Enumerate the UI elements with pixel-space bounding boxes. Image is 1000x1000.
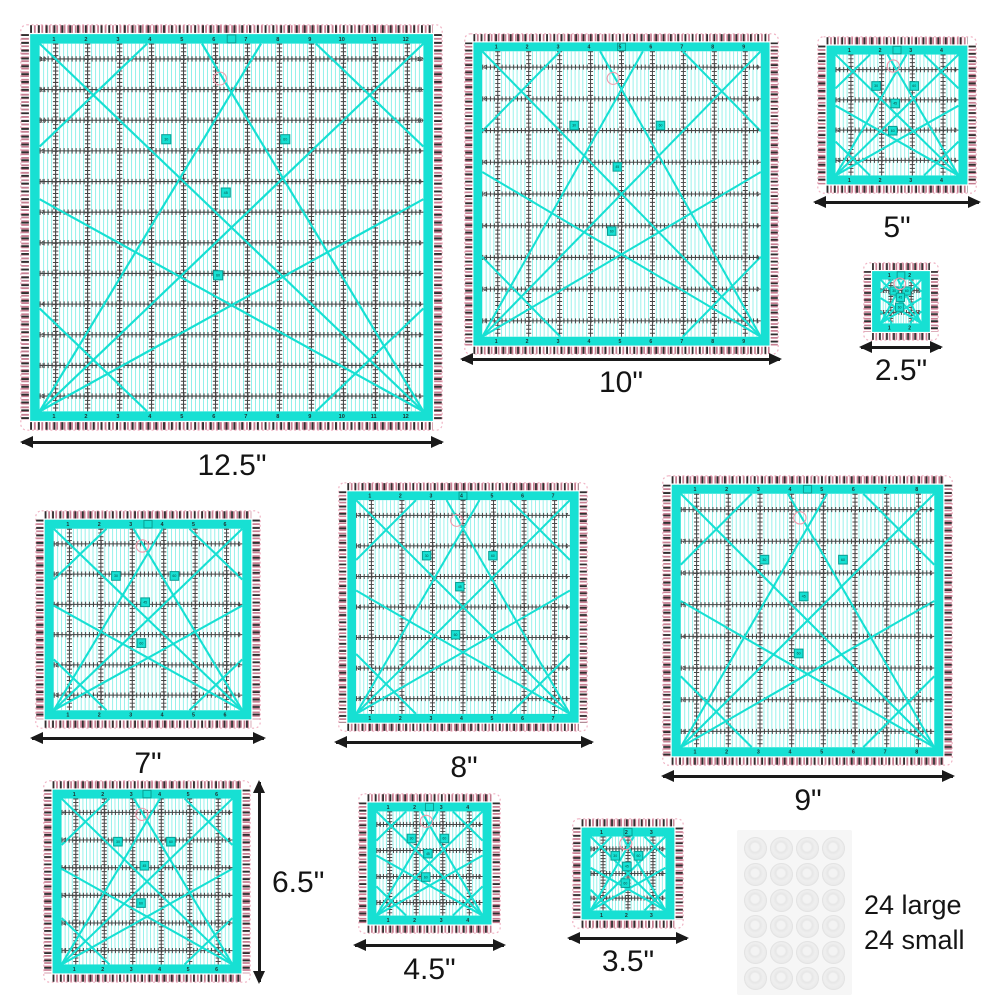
svg-text:2: 2 xyxy=(418,363,421,369)
svg-text:6: 6 xyxy=(215,967,218,973)
svg-text:6: 6 xyxy=(212,414,215,420)
svg-text:1: 1 xyxy=(661,896,664,902)
dots-count-small: 24 small xyxy=(864,923,965,958)
svg-text:5: 5 xyxy=(187,792,190,798)
svg-text:5: 5 xyxy=(491,494,494,500)
svg-text:3: 3 xyxy=(130,792,133,798)
svg-text:60: 60 xyxy=(139,641,143,645)
svg-text:30: 30 xyxy=(114,574,118,578)
adhesive-dot xyxy=(822,863,845,886)
svg-text:60: 60 xyxy=(454,633,458,637)
svg-text:60: 60 xyxy=(424,875,428,879)
svg-text:8: 8 xyxy=(276,414,279,420)
svg-text:1: 1 xyxy=(600,830,603,836)
svg-text:7: 7 xyxy=(756,128,759,134)
svg-text:5: 5 xyxy=(180,37,183,43)
svg-text:5: 5 xyxy=(820,750,823,756)
svg-text:8: 8 xyxy=(930,508,933,514)
adhesive-dot xyxy=(822,889,845,912)
svg-text:1: 1 xyxy=(368,494,371,500)
svg-text:1: 1 xyxy=(682,729,685,735)
dimension-arrow-2-5 xyxy=(861,346,941,349)
svg-text:4: 4 xyxy=(63,866,66,872)
size-label-8: 8" xyxy=(336,751,592,784)
svg-text:4: 4 xyxy=(940,48,943,54)
svg-text:1: 1 xyxy=(358,696,361,702)
adhesive-dot xyxy=(770,941,793,964)
svg-text:2: 2 xyxy=(625,913,628,919)
svg-text:5: 5 xyxy=(618,339,621,345)
svg-text:3: 3 xyxy=(757,750,760,756)
svg-text:9: 9 xyxy=(308,37,311,43)
svg-text:60: 60 xyxy=(841,558,845,562)
svg-text:6: 6 xyxy=(852,487,855,493)
dimension-arrow-12-5 xyxy=(22,441,442,444)
adhesive-dot xyxy=(796,915,819,938)
svg-text:6: 6 xyxy=(521,494,524,500)
svg-text:2: 2 xyxy=(682,698,685,704)
adhesive-dot xyxy=(822,941,845,964)
svg-text:30: 30 xyxy=(613,854,617,858)
svg-text:3: 3 xyxy=(930,666,933,672)
svg-text:6: 6 xyxy=(358,544,361,550)
dimension-arrow-5 xyxy=(815,201,979,204)
ruler-3-5-inch: 30604560113322223311 xyxy=(572,818,684,929)
svg-text:7: 7 xyxy=(930,539,933,545)
svg-text:5: 5 xyxy=(930,603,933,609)
quilting-ruler-graphic: 30604560116622553344443355226611 xyxy=(35,510,261,729)
svg-text:5: 5 xyxy=(756,192,759,198)
svg-text:8: 8 xyxy=(276,37,279,43)
adhesive-dot xyxy=(822,967,845,990)
svg-text:5: 5 xyxy=(228,838,231,844)
svg-text:60: 60 xyxy=(898,305,902,309)
dimension-arrow-6-5 xyxy=(258,782,261,982)
svg-text:3: 3 xyxy=(565,635,568,641)
svg-text:4: 4 xyxy=(158,792,161,798)
svg-text:8: 8 xyxy=(418,180,421,186)
quilting-ruler-graphic: 306045601144223333224411 xyxy=(358,793,501,934)
svg-text:1: 1 xyxy=(495,339,498,345)
svg-text:3: 3 xyxy=(682,666,685,672)
svg-text:3: 3 xyxy=(228,893,231,899)
svg-text:2: 2 xyxy=(879,48,882,54)
svg-text:11: 11 xyxy=(371,37,377,43)
svg-text:8: 8 xyxy=(41,180,44,186)
svg-text:9: 9 xyxy=(484,65,487,71)
svg-text:3: 3 xyxy=(909,48,912,54)
size-label-9: 9" xyxy=(663,784,953,817)
ruler-4-5-inch: 306045601144223333224411 xyxy=(358,793,501,934)
svg-text:2: 2 xyxy=(484,287,487,293)
svg-text:2: 2 xyxy=(55,663,58,669)
svg-text:45: 45 xyxy=(224,191,228,195)
quilting-ruler-graphic: 3060456011992288337744665555664477338822… xyxy=(464,33,779,355)
adhesive-dot xyxy=(770,915,793,938)
svg-text:5: 5 xyxy=(63,838,66,844)
adhesive-dot xyxy=(744,967,767,990)
svg-text:1: 1 xyxy=(930,729,933,735)
svg-text:9: 9 xyxy=(41,149,44,155)
svg-text:1: 1 xyxy=(66,522,69,528)
ruler-6-5-inch: 30604560116622553344443355226611 xyxy=(43,780,251,983)
svg-text:4: 4 xyxy=(466,918,469,924)
svg-text:5: 5 xyxy=(491,716,494,722)
svg-text:1: 1 xyxy=(387,805,390,811)
adhesive-dot xyxy=(744,941,767,964)
svg-text:30: 30 xyxy=(892,289,896,293)
svg-text:5: 5 xyxy=(187,967,190,973)
svg-text:2: 2 xyxy=(908,325,911,331)
svg-text:1: 1 xyxy=(592,896,595,902)
svg-text:2: 2 xyxy=(625,830,628,836)
svg-text:3: 3 xyxy=(756,255,759,261)
svg-text:8: 8 xyxy=(711,339,714,345)
svg-text:60: 60 xyxy=(659,124,663,128)
svg-text:4: 4 xyxy=(358,605,361,611)
svg-text:9: 9 xyxy=(756,65,759,71)
dots-count-large: 24 large xyxy=(864,888,965,923)
svg-text:1: 1 xyxy=(66,713,69,719)
svg-text:2: 2 xyxy=(565,666,568,672)
dimension-arrow-4-5 xyxy=(355,944,504,947)
svg-text:30: 30 xyxy=(164,138,168,142)
svg-text:45: 45 xyxy=(899,296,903,300)
svg-text:6: 6 xyxy=(930,571,933,577)
svg-text:9: 9 xyxy=(308,414,311,420)
svg-text:2: 2 xyxy=(879,178,882,184)
svg-text:3: 3 xyxy=(429,494,432,500)
svg-text:2: 2 xyxy=(63,921,66,927)
svg-text:4: 4 xyxy=(930,634,933,640)
svg-text:7: 7 xyxy=(418,210,421,216)
svg-text:2: 2 xyxy=(837,128,840,134)
svg-text:10: 10 xyxy=(417,118,423,124)
svg-text:11: 11 xyxy=(40,88,46,94)
svg-text:2: 2 xyxy=(478,874,481,880)
svg-text:12: 12 xyxy=(40,57,46,63)
svg-text:1: 1 xyxy=(888,273,891,279)
adhesive-dot xyxy=(770,863,793,886)
svg-text:6: 6 xyxy=(55,542,58,548)
svg-text:1: 1 xyxy=(888,325,891,331)
svg-text:7: 7 xyxy=(565,513,568,519)
svg-text:2: 2 xyxy=(882,288,885,294)
svg-text:6: 6 xyxy=(682,571,685,577)
svg-text:8: 8 xyxy=(915,487,918,493)
svg-text:45: 45 xyxy=(615,165,619,169)
svg-text:3: 3 xyxy=(130,967,133,973)
svg-text:9: 9 xyxy=(742,339,745,345)
svg-text:5: 5 xyxy=(192,713,195,719)
dimension-arrow-8 xyxy=(336,741,592,744)
svg-text:4: 4 xyxy=(682,634,685,640)
svg-text:8: 8 xyxy=(682,508,685,514)
svg-text:4: 4 xyxy=(588,45,591,51)
svg-text:3: 3 xyxy=(557,339,560,345)
svg-text:5: 5 xyxy=(55,572,58,578)
svg-text:4: 4 xyxy=(161,713,164,719)
svg-text:45: 45 xyxy=(802,595,806,599)
svg-text:1: 1 xyxy=(378,900,381,906)
svg-text:8: 8 xyxy=(484,97,487,103)
size-label-7: 7" xyxy=(32,747,264,780)
svg-text:11: 11 xyxy=(371,414,377,420)
svg-text:2: 2 xyxy=(413,918,416,924)
svg-text:1: 1 xyxy=(484,319,487,325)
svg-text:10: 10 xyxy=(339,37,345,43)
svg-text:30: 30 xyxy=(762,558,766,562)
adhesive-dot xyxy=(770,967,793,990)
svg-text:4: 4 xyxy=(940,178,943,184)
svg-text:2: 2 xyxy=(526,339,529,345)
svg-text:5: 5 xyxy=(418,271,421,277)
svg-text:6: 6 xyxy=(228,810,231,816)
svg-text:3: 3 xyxy=(129,522,132,528)
svg-text:30: 30 xyxy=(572,124,576,128)
svg-text:60: 60 xyxy=(491,554,495,558)
svg-text:2: 2 xyxy=(526,45,529,51)
svg-text:6: 6 xyxy=(756,160,759,166)
svg-text:30: 30 xyxy=(410,837,414,841)
svg-text:4: 4 xyxy=(565,605,568,611)
svg-text:2: 2 xyxy=(756,287,759,293)
adhesive-dot xyxy=(770,889,793,912)
svg-text:4: 4 xyxy=(484,224,487,230)
svg-text:6: 6 xyxy=(238,542,241,548)
svg-text:3: 3 xyxy=(129,713,132,719)
svg-text:9: 9 xyxy=(418,149,421,155)
svg-text:2: 2 xyxy=(84,414,87,420)
svg-text:6: 6 xyxy=(41,241,44,247)
svg-text:60: 60 xyxy=(797,652,801,656)
svg-text:8: 8 xyxy=(915,750,918,756)
adhesive-dots-sheet xyxy=(737,830,852,995)
svg-text:12: 12 xyxy=(403,37,409,43)
svg-text:45: 45 xyxy=(143,600,147,604)
svg-text:5: 5 xyxy=(238,572,241,578)
svg-text:5: 5 xyxy=(41,271,44,277)
svg-text:4: 4 xyxy=(588,339,591,345)
ruler-8-inch: 306045601177226633554444553366227711 xyxy=(338,482,588,732)
svg-text:4: 4 xyxy=(460,716,463,722)
product-image-canvas: 3060456011121222111133101044995588667777… xyxy=(0,0,1000,1000)
svg-text:7: 7 xyxy=(41,210,44,216)
ruler-9-inch: 3060456011882277336644555544663377228811 xyxy=(662,475,953,766)
svg-text:3: 3 xyxy=(116,414,119,420)
size-label-12-5: 12.5" xyxy=(22,449,442,482)
svg-text:3: 3 xyxy=(909,178,912,184)
svg-text:1: 1 xyxy=(52,37,55,43)
svg-text:1: 1 xyxy=(756,319,759,325)
svg-text:3: 3 xyxy=(650,830,653,836)
svg-text:2: 2 xyxy=(725,487,728,493)
svg-text:60: 60 xyxy=(442,837,446,841)
svg-text:6: 6 xyxy=(649,45,652,51)
svg-text:7: 7 xyxy=(244,37,247,43)
svg-text:45: 45 xyxy=(142,864,146,868)
size-label-3-5: 3.5" xyxy=(569,945,687,978)
svg-text:2: 2 xyxy=(954,128,957,134)
svg-text:60: 60 xyxy=(905,289,909,293)
svg-text:1: 1 xyxy=(848,178,851,184)
svg-text:4: 4 xyxy=(837,68,840,74)
svg-text:1: 1 xyxy=(41,394,44,400)
svg-text:3: 3 xyxy=(757,487,760,493)
svg-text:2: 2 xyxy=(84,37,87,43)
svg-text:3: 3 xyxy=(837,98,840,104)
svg-text:3: 3 xyxy=(378,848,381,854)
size-label-5: 5" xyxy=(815,211,979,244)
svg-text:5: 5 xyxy=(358,574,361,580)
svg-text:3: 3 xyxy=(116,37,119,43)
svg-text:3: 3 xyxy=(41,333,44,339)
svg-text:2: 2 xyxy=(98,522,101,528)
svg-text:6: 6 xyxy=(63,810,66,816)
svg-text:1: 1 xyxy=(848,48,851,54)
svg-text:30: 30 xyxy=(874,84,878,88)
svg-text:4: 4 xyxy=(228,866,231,872)
svg-text:1: 1 xyxy=(73,967,76,973)
svg-text:60: 60 xyxy=(891,129,895,133)
svg-text:2: 2 xyxy=(378,874,381,880)
quilting-ruler-graphic: 3060456011222211 xyxy=(863,262,939,341)
quilting-ruler-graphic: 3060456011121222111133101044995588667777… xyxy=(20,24,443,431)
svg-text:4: 4 xyxy=(789,487,792,493)
adhesive-dot xyxy=(822,915,845,938)
svg-text:4: 4 xyxy=(378,822,381,828)
adhesive-dot xyxy=(796,967,819,990)
svg-text:6: 6 xyxy=(521,716,524,722)
svg-text:5: 5 xyxy=(618,45,621,51)
svg-text:60: 60 xyxy=(610,229,614,233)
svg-text:6: 6 xyxy=(215,792,218,798)
svg-text:4: 4 xyxy=(238,602,241,608)
svg-text:2: 2 xyxy=(399,716,402,722)
svg-text:10: 10 xyxy=(339,414,345,420)
svg-text:2: 2 xyxy=(101,792,104,798)
svg-text:3: 3 xyxy=(484,255,487,261)
svg-text:60: 60 xyxy=(283,138,287,142)
svg-text:6: 6 xyxy=(223,713,226,719)
svg-text:4: 4 xyxy=(158,967,161,973)
svg-text:1: 1 xyxy=(228,949,231,955)
svg-text:1: 1 xyxy=(600,913,603,919)
svg-text:2: 2 xyxy=(399,494,402,500)
svg-text:1: 1 xyxy=(837,158,840,164)
svg-text:3: 3 xyxy=(440,918,443,924)
svg-text:8: 8 xyxy=(711,45,714,51)
svg-text:60: 60 xyxy=(139,901,143,905)
svg-text:30: 30 xyxy=(425,554,429,558)
svg-text:3: 3 xyxy=(557,45,560,51)
svg-text:3: 3 xyxy=(429,716,432,722)
adhesive-dot xyxy=(796,863,819,886)
adhesive-dot xyxy=(770,837,793,860)
svg-text:3: 3 xyxy=(418,333,421,339)
svg-text:45: 45 xyxy=(426,852,430,856)
svg-text:3: 3 xyxy=(954,98,957,104)
svg-text:7: 7 xyxy=(682,539,685,545)
svg-text:10: 10 xyxy=(40,118,46,124)
svg-text:5: 5 xyxy=(484,192,487,198)
quilting-ruler-graphic: 306045601177226633554444553366227711 xyxy=(338,482,588,732)
svg-text:60: 60 xyxy=(169,840,173,844)
svg-text:2: 2 xyxy=(930,698,933,704)
svg-text:60: 60 xyxy=(172,574,176,578)
svg-text:3: 3 xyxy=(358,635,361,641)
svg-text:6: 6 xyxy=(212,37,215,43)
svg-text:1: 1 xyxy=(418,394,421,400)
svg-text:5: 5 xyxy=(192,522,195,528)
size-label-2-5: 2.5" xyxy=(851,354,951,387)
svg-text:60: 60 xyxy=(912,84,916,88)
svg-text:2: 2 xyxy=(358,666,361,672)
svg-text:1: 1 xyxy=(693,750,696,756)
quilting-ruler-graphic: 3060456011882277336644555544663377228811 xyxy=(662,475,953,766)
svg-text:45: 45 xyxy=(458,585,462,589)
svg-text:45: 45 xyxy=(893,102,897,106)
svg-text:2: 2 xyxy=(908,273,911,279)
svg-text:8: 8 xyxy=(756,97,759,103)
svg-text:45: 45 xyxy=(625,865,629,869)
size-label-6-5: 6.5" xyxy=(272,866,324,899)
svg-text:1: 1 xyxy=(63,949,66,955)
svg-text:6: 6 xyxy=(565,544,568,550)
svg-text:6: 6 xyxy=(223,522,226,528)
svg-text:5: 5 xyxy=(682,603,685,609)
svg-text:2: 2 xyxy=(917,288,920,294)
dimension-arrow-10 xyxy=(462,358,780,361)
quilting-ruler-graphic: 306045601144223333224411 xyxy=(817,36,977,194)
ruler-7-inch: 30604560116622553344443355226611 xyxy=(35,510,261,729)
svg-text:7: 7 xyxy=(244,414,247,420)
svg-text:1: 1 xyxy=(565,696,568,702)
svg-text:3: 3 xyxy=(592,847,595,853)
svg-text:1: 1 xyxy=(478,900,481,906)
svg-text:3: 3 xyxy=(478,848,481,854)
svg-text:2: 2 xyxy=(41,363,44,369)
ruler-10-inch: 3060456011992288337744665555664477338822… xyxy=(464,33,779,355)
svg-text:5: 5 xyxy=(180,414,183,420)
svg-text:1: 1 xyxy=(73,792,76,798)
svg-text:4: 4 xyxy=(756,224,759,230)
svg-text:4: 4 xyxy=(789,750,792,756)
svg-text:7: 7 xyxy=(484,128,487,134)
svg-text:7: 7 xyxy=(358,513,361,519)
svg-text:2: 2 xyxy=(592,871,595,877)
svg-text:2: 2 xyxy=(101,967,104,973)
svg-text:1: 1 xyxy=(954,158,957,164)
svg-text:6: 6 xyxy=(418,241,421,247)
svg-text:1: 1 xyxy=(238,693,241,699)
svg-text:3: 3 xyxy=(55,633,58,639)
ruler-12-5-inch: 3060456011121222111133101044995588667777… xyxy=(20,24,443,431)
svg-text:4: 4 xyxy=(55,602,58,608)
adhesive-dot xyxy=(744,915,767,938)
quilting-ruler-graphic: 30604560113322223311 xyxy=(572,818,684,929)
svg-text:1: 1 xyxy=(693,487,696,493)
adhesive-dot xyxy=(822,837,845,860)
svg-text:2: 2 xyxy=(98,713,101,719)
svg-text:4: 4 xyxy=(478,822,481,828)
ruler-2-5-inch: 3060456011222211 xyxy=(863,262,939,341)
svg-text:5: 5 xyxy=(820,487,823,493)
svg-text:7: 7 xyxy=(680,339,683,345)
svg-text:3: 3 xyxy=(661,847,664,853)
adhesive-dot xyxy=(796,889,819,912)
adhesive-dot xyxy=(744,863,767,886)
